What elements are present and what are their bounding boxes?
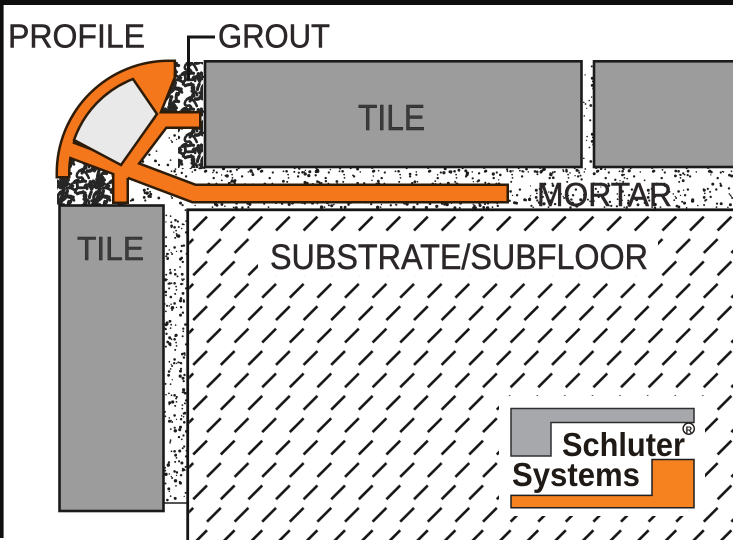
svg-text:Systems: Systems <box>512 456 640 493</box>
svg-text:R: R <box>686 425 693 435</box>
svg-text:TILE: TILE <box>77 230 144 267</box>
svg-text:TILE: TILE <box>358 97 425 138</box>
svg-text:SUBSTRATE/SUBFLOOR: SUBSTRATE/SUBFLOOR <box>270 238 648 277</box>
svg-text:MORTAR: MORTAR <box>537 176 672 213</box>
svg-text:GROUT: GROUT <box>218 18 330 55</box>
svg-text:PROFILE: PROFILE <box>8 18 145 55</box>
